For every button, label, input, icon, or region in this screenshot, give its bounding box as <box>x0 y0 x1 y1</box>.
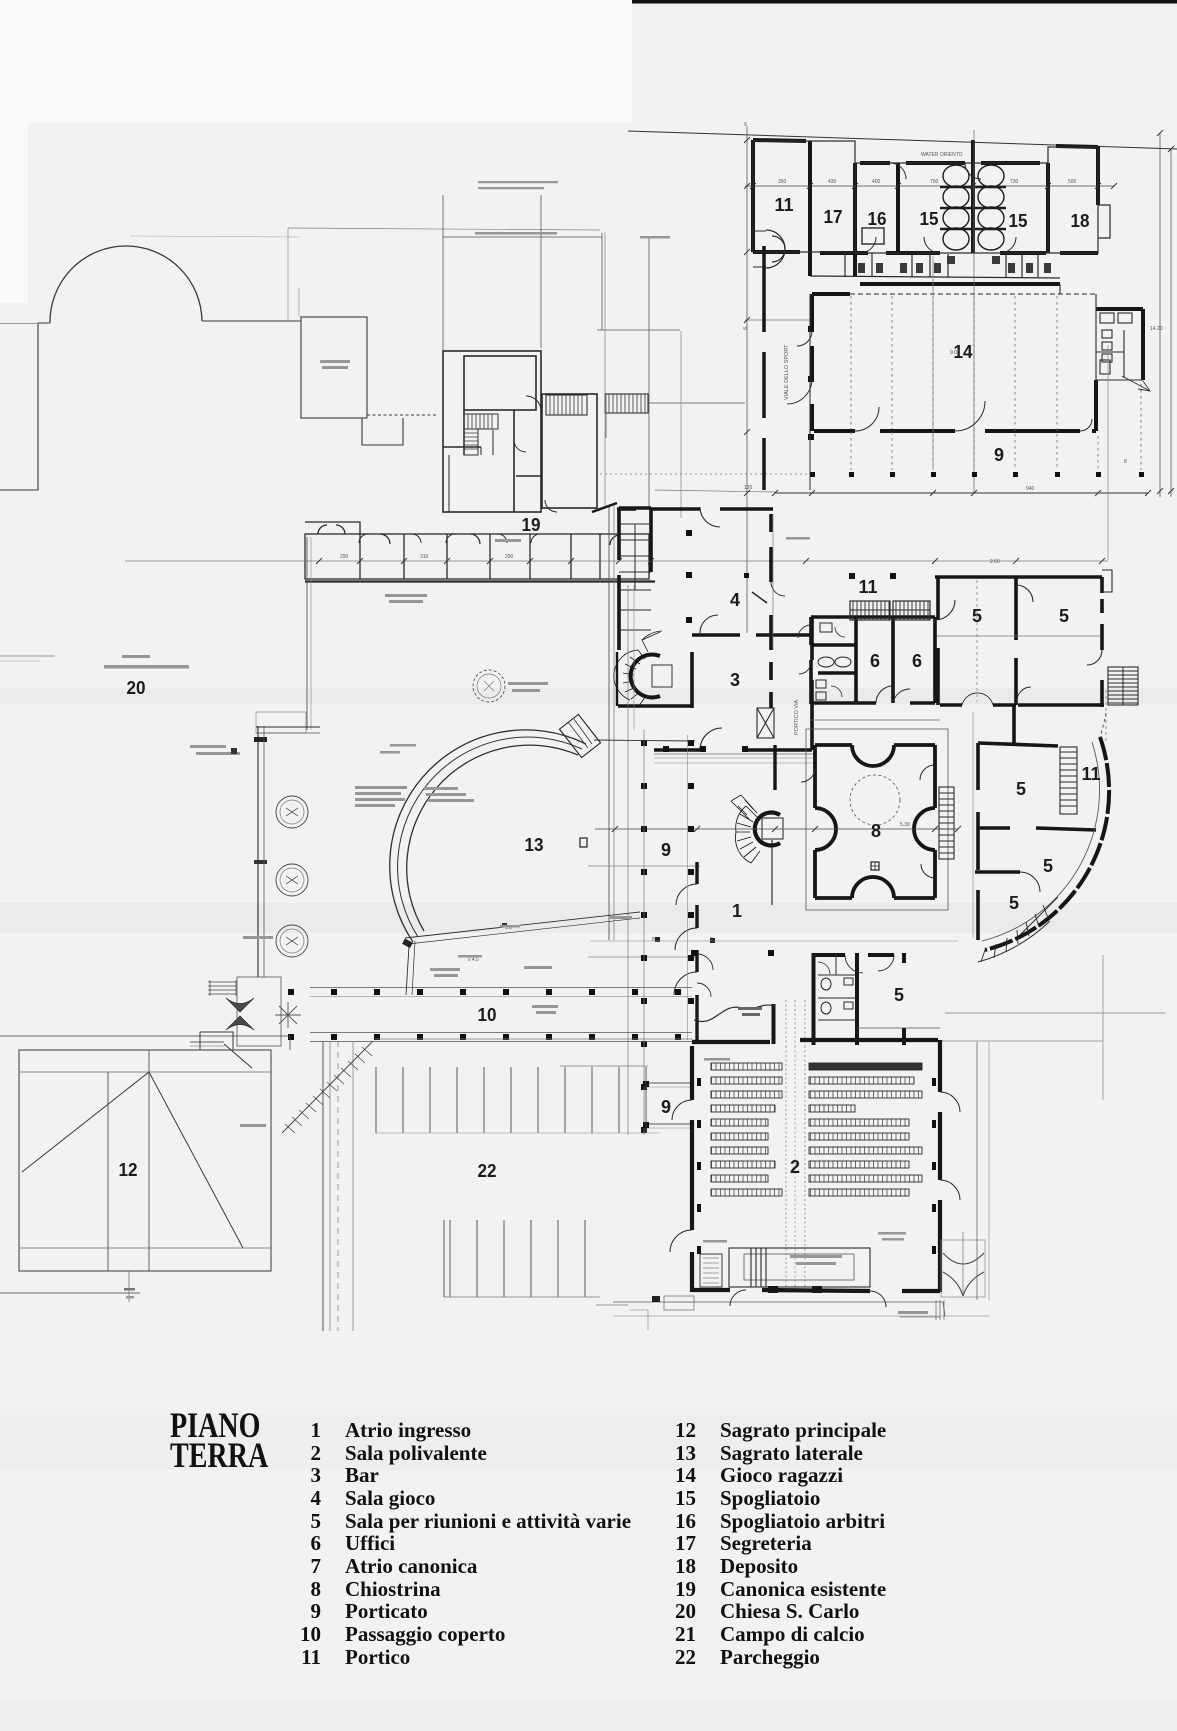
svg-text:Chiesa S. Carlo: Chiesa S. Carlo <box>720 1599 859 1623</box>
svg-text:11: 11 <box>1082 764 1101 784</box>
svg-text:730: 730 <box>1010 179 1019 185</box>
svg-text:Canonica esistente: Canonica esistente <box>720 1577 886 1601</box>
svg-text:17: 17 <box>824 207 843 227</box>
svg-text:15: 15 <box>675 1486 696 1510</box>
svg-text:290: 290 <box>505 554 514 560</box>
svg-text:750: 750 <box>930 179 939 185</box>
svg-text:15: 15 <box>920 209 939 229</box>
svg-text:310: 310 <box>420 554 429 560</box>
svg-text:Parcheggio: Parcheggio <box>720 1645 820 1669</box>
svg-text:Atrio ingresso: Atrio ingresso <box>345 1418 471 1442</box>
svg-text:5: 5 <box>894 985 904 1005</box>
svg-text:20: 20 <box>127 678 146 698</box>
svg-text:5: 5 <box>1059 606 1069 626</box>
svg-text:5: 5 <box>1016 779 1026 799</box>
svg-text:19: 19 <box>675 1577 696 1601</box>
svg-text:350: 350 <box>778 179 787 185</box>
svg-text:9: 9 <box>661 1097 671 1117</box>
svg-text:11: 11 <box>775 195 794 215</box>
svg-text:500: 500 <box>1068 179 1077 185</box>
svg-text:4: 4 <box>730 590 740 610</box>
svg-text:16: 16 <box>868 209 887 229</box>
svg-text:17: 17 <box>675 1531 696 1555</box>
svg-text:TERRA: TERRA <box>170 1435 269 1475</box>
svg-text:Sagrato laterale: Sagrato laterale <box>720 1441 863 1465</box>
svg-text:Deposito: Deposito <box>720 1554 798 1578</box>
svg-text:Gioco ragazzi: Gioco ragazzi <box>720 1463 843 1487</box>
svg-text:1: 1 <box>732 901 742 921</box>
svg-text:Spogliatoio arbitri: Spogliatoio arbitri <box>720 1509 885 1533</box>
svg-text:7: 7 <box>311 1554 322 1578</box>
svg-text:p: p <box>652 936 655 942</box>
svg-text:Sala per riunioni e attività v: Sala per riunioni e attività varie <box>345 1509 631 1533</box>
svg-text:19: 19 <box>522 515 541 535</box>
svg-text:8: 8 <box>1124 459 1127 465</box>
svg-text:10: 10 <box>300 1622 321 1646</box>
svg-text:14.20: 14.20 <box>1150 326 1163 332</box>
svg-text:15: 15 <box>1009 211 1028 231</box>
svg-text:400: 400 <box>872 179 881 185</box>
svg-text:3: 3 <box>311 1463 322 1487</box>
svg-text:WATER ORIENTO: WATER ORIENTO <box>921 152 963 158</box>
svg-text:Segreteria: Segreteria <box>720 1531 812 1555</box>
svg-text:290: 290 <box>340 554 349 560</box>
svg-text:9: 9 <box>744 122 747 128</box>
svg-text:Spogliatoio: Spogliatoio <box>720 1486 820 1510</box>
svg-text:Sagrato principale: Sagrato principale <box>720 1418 886 1442</box>
svg-text:2: 2 <box>311 1441 322 1465</box>
svg-text:Sala polivalente: Sala polivalente <box>345 1441 487 1465</box>
svg-text:2: 2 <box>790 1157 800 1177</box>
svg-text:6: 6 <box>311 1531 322 1555</box>
svg-text:6: 6 <box>912 651 922 671</box>
svg-text:16: 16 <box>675 1509 696 1533</box>
svg-text:Sala gioco: Sala gioco <box>345 1486 435 1510</box>
svg-text:2.60: 2.60 <box>990 559 1000 565</box>
svg-text:940: 940 <box>1026 486 1035 492</box>
svg-text:13: 13 <box>675 1441 696 1465</box>
svg-text:3: 3 <box>730 670 740 690</box>
svg-text:x 4.5: x 4.5 <box>468 957 479 963</box>
svg-text:22: 22 <box>478 1161 497 1181</box>
svg-text:12: 12 <box>119 1160 138 1180</box>
svg-text:20: 20 <box>675 1599 696 1623</box>
svg-text:9: 9 <box>661 840 671 860</box>
svg-text:5.30: 5.30 <box>900 822 910 828</box>
svg-text:Campo di calcio: Campo di calcio <box>720 1622 865 1646</box>
svg-text:9: 9 <box>994 445 1004 465</box>
svg-text:8: 8 <box>311 1577 322 1601</box>
svg-text:21: 21 <box>675 1622 696 1646</box>
svg-text:p: p <box>710 936 713 942</box>
svg-text:vi: vi <box>743 326 747 332</box>
svg-text:10: 10 <box>478 1005 497 1025</box>
svg-text:5: 5 <box>1009 893 1019 913</box>
svg-text:11: 11 <box>859 577 878 597</box>
svg-text:13: 13 <box>525 835 544 855</box>
svg-text:Uffici: Uffici <box>345 1531 395 1555</box>
svg-text:Porticato: Porticato <box>345 1599 428 1623</box>
svg-text:5: 5 <box>1043 856 1053 876</box>
svg-text:9.00: 9.00 <box>950 350 960 356</box>
svg-text:18: 18 <box>675 1554 696 1578</box>
svg-text:130: 130 <box>744 485 753 491</box>
svg-text:8: 8 <box>871 821 881 841</box>
svg-text:Chiostrina: Chiostrina <box>345 1577 441 1601</box>
svg-text:4: 4 <box>311 1486 322 1510</box>
svg-text:Atrio canonica: Atrio canonica <box>345 1554 478 1578</box>
svg-text:Portico: Portico <box>345 1645 410 1669</box>
svg-text:12: 12 <box>675 1418 696 1442</box>
svg-text:430: 430 <box>828 179 837 185</box>
svg-text:18: 18 <box>1071 211 1090 231</box>
svg-text:6: 6 <box>870 651 880 671</box>
svg-text:1: 1 <box>311 1418 322 1442</box>
svg-text:Passaggio coperto: Passaggio coperto <box>345 1622 505 1646</box>
svg-text:PORTICO VIA: PORTICO VIA <box>794 699 800 735</box>
svg-text:5: 5 <box>311 1509 322 1533</box>
svg-text:9: 9 <box>311 1599 322 1623</box>
svg-text:22: 22 <box>675 1645 696 1669</box>
svg-text:14: 14 <box>675 1463 697 1487</box>
svg-text:11: 11 <box>301 1645 321 1669</box>
svg-text:5: 5 <box>972 606 982 626</box>
svg-text:VIALE DELLO SPORT: VIALE DELLO SPORT <box>784 344 790 400</box>
svg-text:Bar: Bar <box>345 1463 379 1487</box>
